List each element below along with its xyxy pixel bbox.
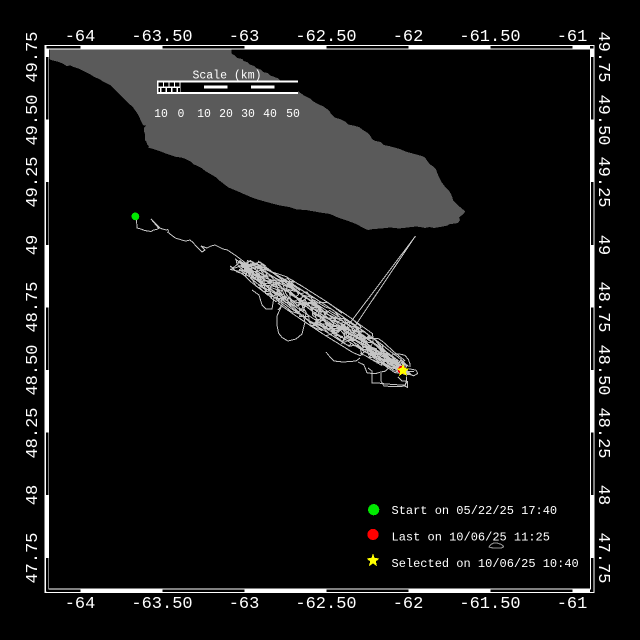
svg-text:48.50: 48.50 bbox=[593, 344, 612, 395]
svg-text:-62.50: -62.50 bbox=[295, 595, 356, 614]
svg-text:48.75: 48.75 bbox=[24, 281, 43, 332]
svg-text:49.75: 49.75 bbox=[24, 31, 43, 82]
svg-text:10: 10 bbox=[154, 108, 168, 121]
svg-text:Selected on 10/06/25 10:40: Selected on 10/06/25 10:40 bbox=[392, 557, 579, 571]
svg-text:-61: -61 bbox=[557, 28, 588, 47]
svg-text:-61.50: -61.50 bbox=[459, 28, 520, 47]
svg-text:49.25: 49.25 bbox=[593, 156, 612, 207]
svg-text:-63: -63 bbox=[229, 595, 260, 614]
svg-text:-63.50: -63.50 bbox=[131, 595, 192, 614]
svg-text:-61.50: -61.50 bbox=[459, 595, 520, 614]
svg-text:48: 48 bbox=[593, 485, 612, 505]
svg-text:49: 49 bbox=[593, 235, 612, 255]
svg-text:20: 20 bbox=[219, 108, 233, 121]
svg-text:-62.50: -62.50 bbox=[295, 28, 356, 47]
svg-text:49: 49 bbox=[24, 235, 43, 255]
svg-text:48: 48 bbox=[24, 485, 43, 505]
svg-text:-62: -62 bbox=[393, 28, 424, 47]
svg-text:Last on 10/06/25 11:25: Last on 10/06/25 11:25 bbox=[392, 531, 550, 545]
svg-text:47.75: 47.75 bbox=[24, 532, 43, 583]
svg-text:-64: -64 bbox=[65, 595, 96, 614]
svg-text:49.50: 49.50 bbox=[24, 94, 43, 145]
svg-text:-63.50: -63.50 bbox=[131, 28, 192, 47]
svg-text:10: 10 bbox=[197, 108, 211, 121]
svg-text:49.25: 49.25 bbox=[24, 156, 43, 207]
svg-text:40: 40 bbox=[263, 108, 277, 121]
svg-text:47.75: 47.75 bbox=[593, 532, 612, 583]
svg-text:Scale (km): Scale (km) bbox=[192, 70, 261, 83]
svg-text:-62: -62 bbox=[393, 595, 424, 614]
svg-text:49.50: 49.50 bbox=[593, 94, 612, 145]
svg-text:0: 0 bbox=[178, 108, 185, 121]
svg-text:30: 30 bbox=[241, 108, 255, 121]
svg-text:50: 50 bbox=[286, 108, 300, 121]
svg-text:-64: -64 bbox=[65, 28, 96, 47]
svg-text:48.75: 48.75 bbox=[593, 281, 612, 332]
svg-text:48.25: 48.25 bbox=[24, 407, 43, 458]
svg-text:-63: -63 bbox=[229, 28, 260, 47]
svg-text:Start on 05/22/25 17:40: Start on 05/22/25 17:40 bbox=[392, 504, 558, 518]
svg-text:-61: -61 bbox=[557, 595, 588, 614]
svg-text:48.25: 48.25 bbox=[593, 407, 612, 458]
svg-text:49.75: 49.75 bbox=[593, 31, 612, 82]
svg-text:48.50: 48.50 bbox=[24, 344, 43, 395]
